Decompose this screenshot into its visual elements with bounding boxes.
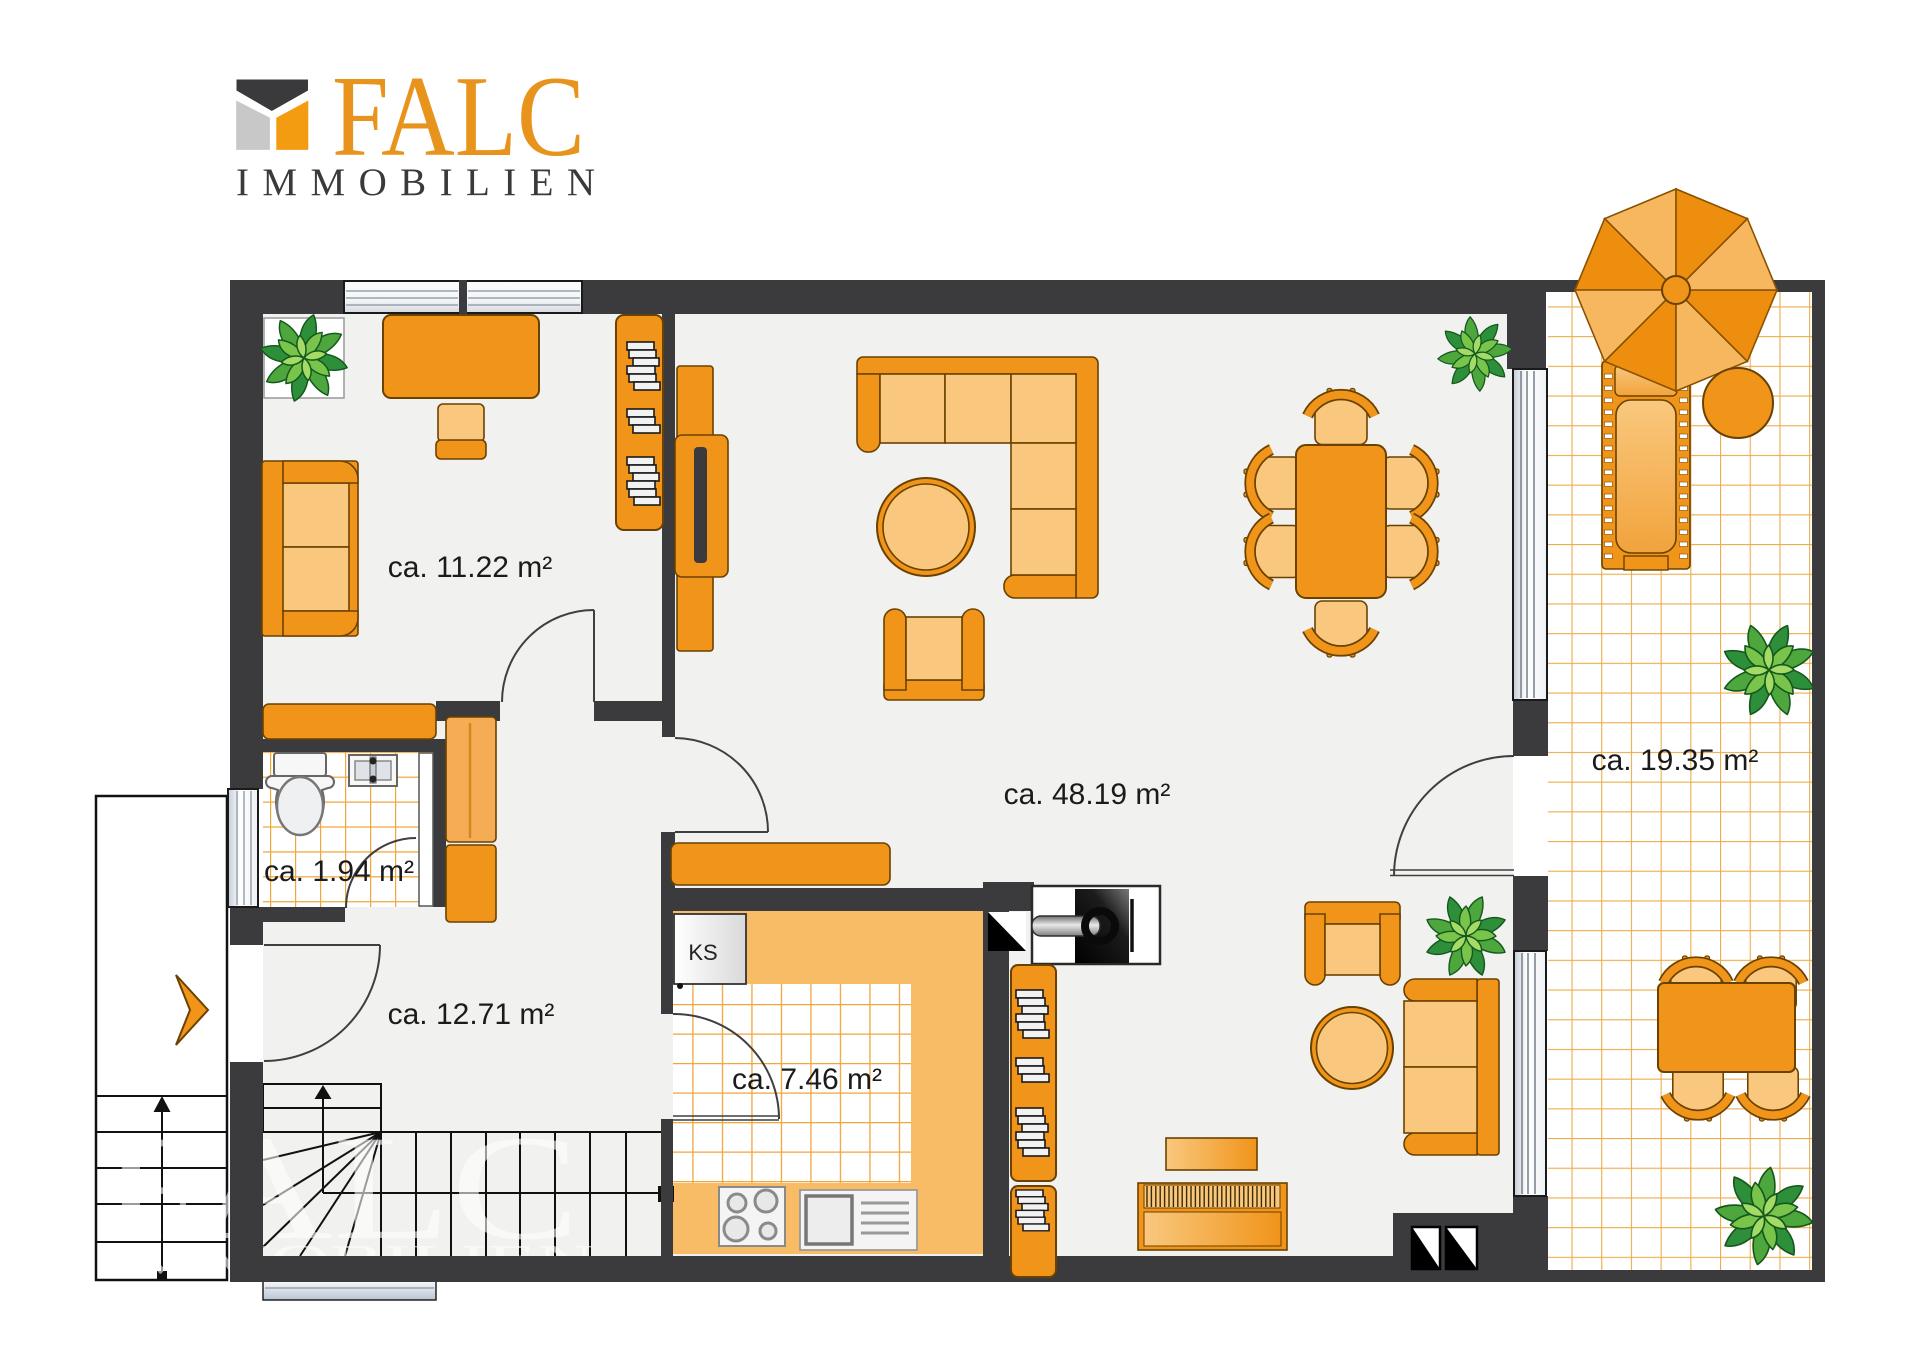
svg-text:KS: KS [688, 940, 717, 965]
svg-text:ca. 19.35 m²: ca. 19.35 m² [1592, 744, 1759, 777]
svg-text:IMMOBILIEN: IMMOBILIEN [236, 161, 595, 204]
svg-text:ca. 7.46 m²: ca. 7.46 m² [732, 1063, 882, 1096]
svg-text:ca. 48.19 m²: ca. 48.19 m² [1004, 778, 1171, 811]
svg-text:ca. 11.22 m²: ca. 11.22 m² [388, 551, 553, 584]
svg-text:ca. 12.71 m²: ca. 12.71 m² [388, 998, 555, 1031]
svg-text:ca. 1.94 m²: ca. 1.94 m² [264, 855, 414, 888]
